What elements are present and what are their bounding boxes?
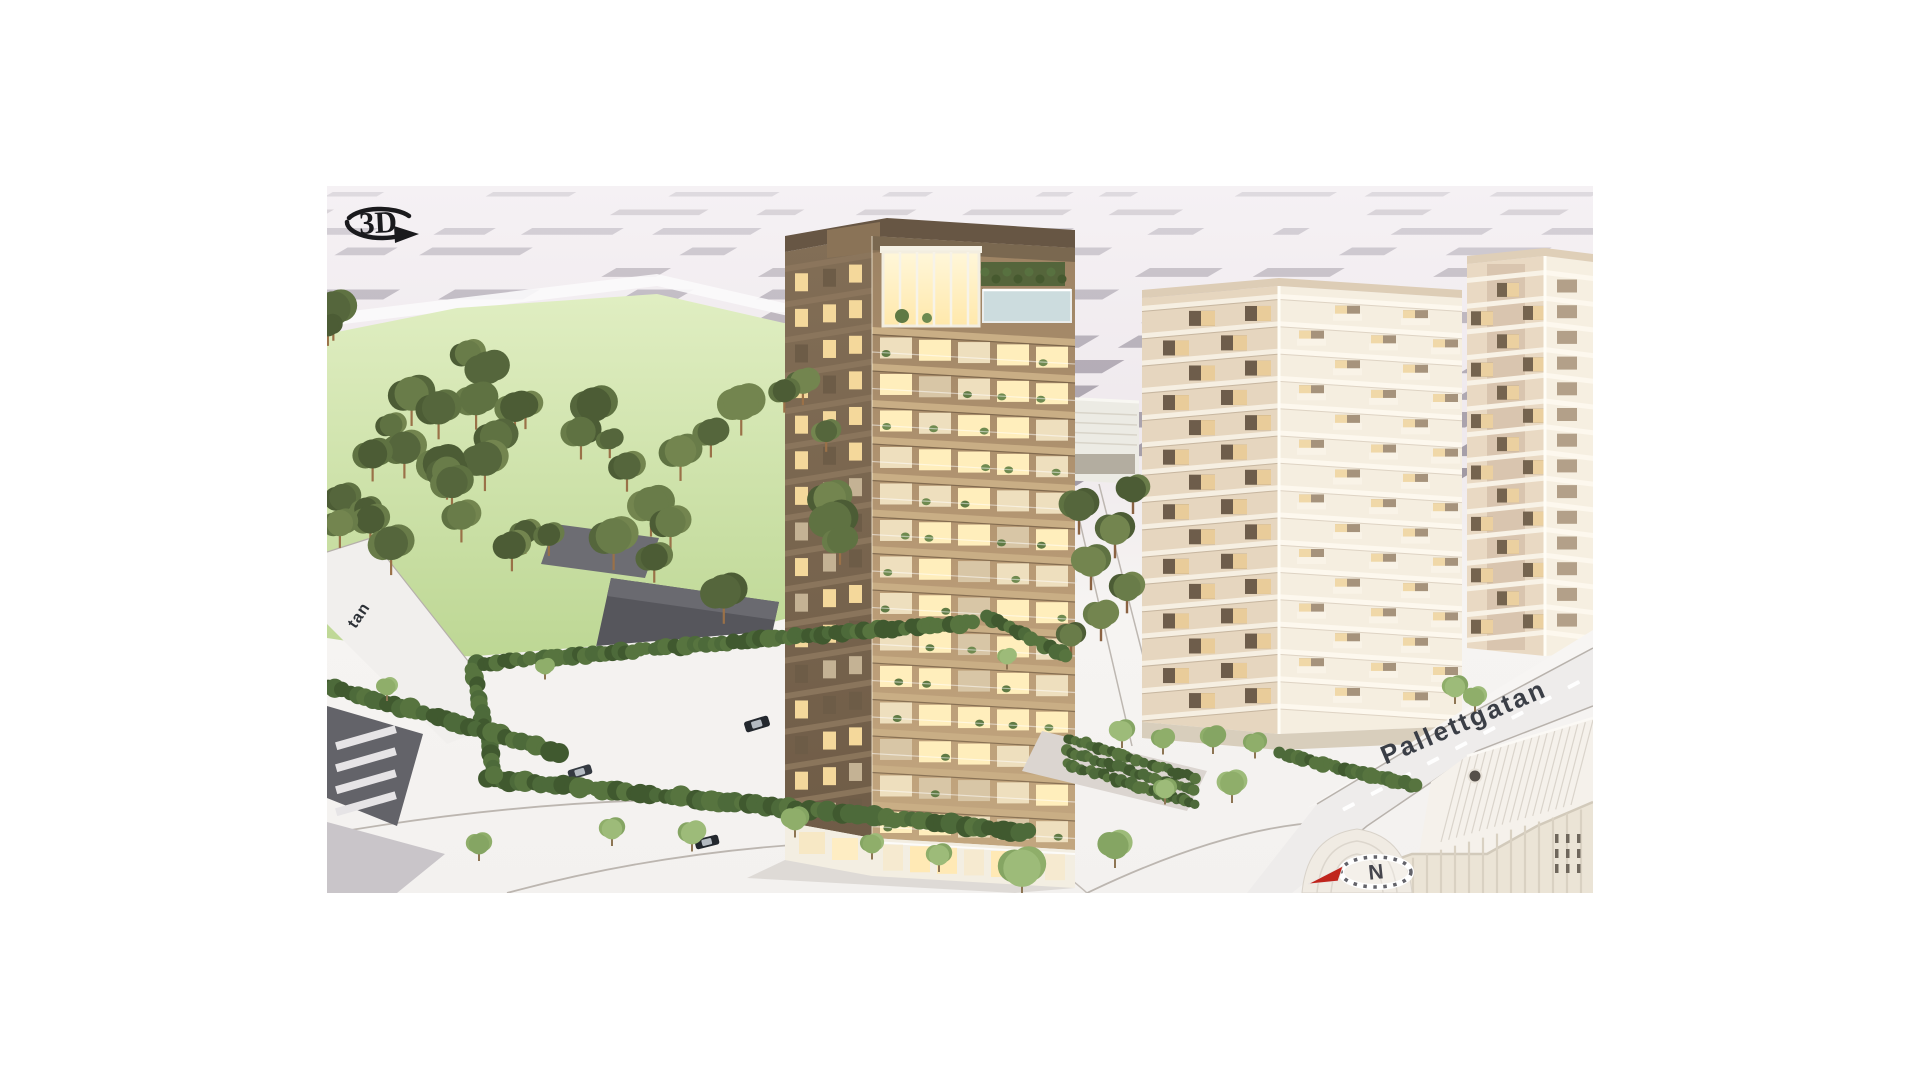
round-vent-window xyxy=(1469,770,1482,783)
compass-north-label: N xyxy=(1367,860,1384,884)
3d-render-canvas: tan Pallettgatan N 3D xyxy=(327,186,1593,893)
3d-scene-viewport[interactable]: tan Pallettgatan N 3D xyxy=(327,186,1593,893)
page: tan Pallettgatan N 3D xyxy=(0,0,1920,1080)
glass-balustrade xyxy=(983,290,1071,322)
